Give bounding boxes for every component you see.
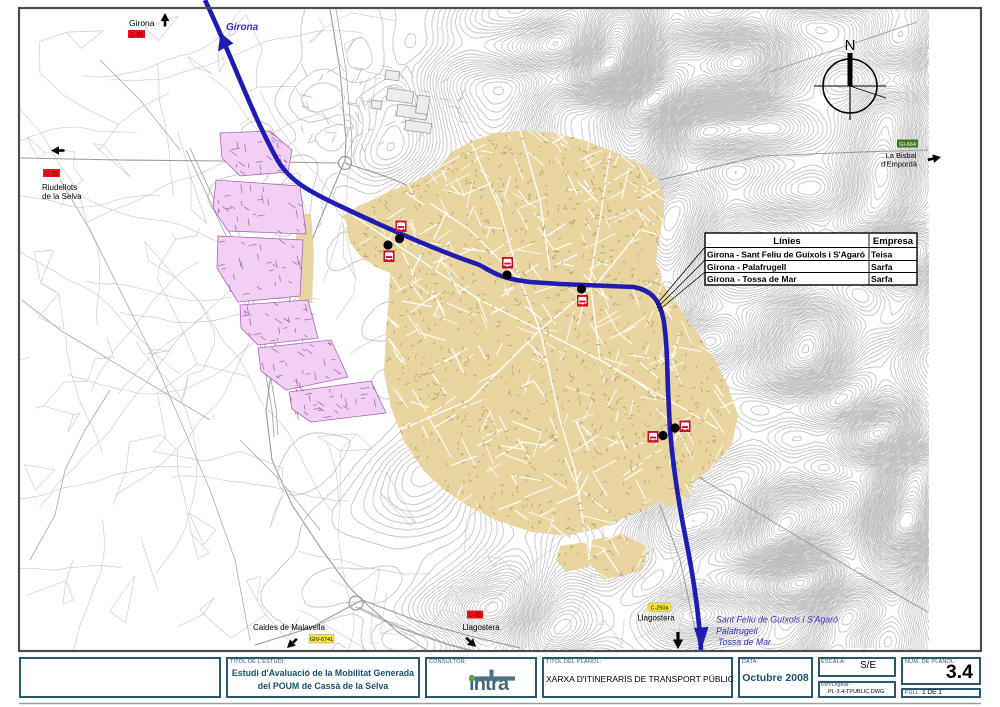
svg-text:GIV-6741: GIV-6741 <box>310 637 333 643</box>
svg-text:Caldes de Malavella: Caldes de Malavella <box>253 623 326 632</box>
svg-text:GI-664: GI-664 <box>899 142 916 148</box>
svg-text:Teisa: Teisa <box>871 250 893 260</box>
svg-text:Sarfa: Sarfa <box>871 274 893 284</box>
svg-text:C-65: C-65 <box>468 613 482 619</box>
svg-text:Línies: Línies <box>773 236 800 247</box>
svg-text:d'Empordà: d'Empordà <box>881 160 918 169</box>
svg-text:Girona - Palafrugell: Girona - Palafrugell <box>707 262 786 272</box>
svg-text:Sarfa: Sarfa <box>871 262 893 272</box>
svg-text:C-25: C-25 <box>45 172 59 178</box>
svg-text:C-250a: C-250a <box>650 606 669 612</box>
svg-text:Girona: Girona <box>129 18 155 28</box>
svg-text:Llagostera: Llagostera <box>637 614 675 623</box>
svg-text:Llagostera: Llagostera <box>462 623 500 632</box>
svg-text:Girona: Girona <box>226 22 259 33</box>
svg-text:Girona - Sant Feliu de Guíxols: Girona - Sant Feliu de Guíxols i S'Agaró <box>707 250 865 260</box>
svg-text:de la Selva: de la Selva <box>42 192 82 201</box>
svg-text:Empresa: Empresa <box>873 236 914 247</box>
svg-text:Girona - Tossa de Mar: Girona - Tossa de Mar <box>707 274 797 284</box>
svg-text:Sant Feliu de Guíxols i S'Agar: Sant Feliu de Guíxols i S'Agaró <box>716 615 838 625</box>
svg-text:Palafrugell: Palafrugell <box>716 626 759 636</box>
svg-text:N: N <box>845 37 856 54</box>
svg-text:Riudellots: Riudellots <box>42 183 77 192</box>
svg-text:Tossa de Mar: Tossa de Mar <box>718 637 772 647</box>
svg-text:C-65: C-65 <box>130 33 144 39</box>
